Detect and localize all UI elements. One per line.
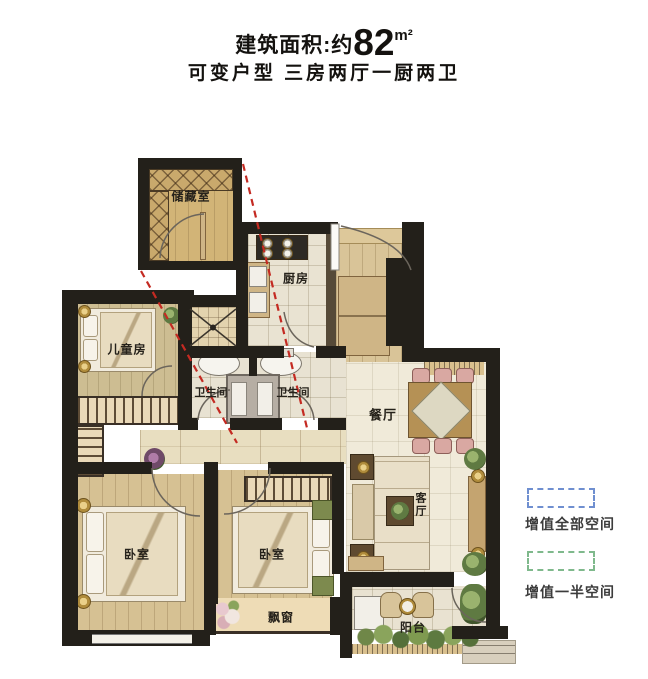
wall <box>230 418 282 430</box>
kids-pillow-2 <box>83 339 98 361</box>
wall <box>330 597 340 635</box>
room-label-bedroom-left: 卧室 <box>124 546 150 563</box>
room-label-bedroom-mid: 卧室 <box>259 546 285 563</box>
wall <box>326 234 336 346</box>
balcony-plant-icon <box>460 584 488 624</box>
legend-half-box <box>527 551 595 571</box>
room-label-storage: 储藏室 <box>171 188 210 205</box>
dining-window-sill <box>424 362 484 375</box>
wall <box>386 258 404 346</box>
wall <box>178 295 192 430</box>
bay-flowers-icon <box>214 600 242 630</box>
wall <box>178 346 284 358</box>
room-label-living: 客厅 <box>412 492 428 518</box>
lamp-icon <box>357 461 370 474</box>
wall <box>76 462 152 474</box>
wall <box>204 597 216 635</box>
shower-tray-left <box>231 382 247 416</box>
wall <box>236 222 338 234</box>
kids-lamp <box>78 305 91 318</box>
dining-chair <box>434 438 452 454</box>
bed-left-pillow <box>86 512 104 552</box>
shower-tray-right <box>257 382 273 416</box>
page-title: 建筑面积:约82m² <box>0 24 648 61</box>
room-label-dining: 餐厅 <box>369 405 397 424</box>
wall <box>452 626 508 639</box>
wall <box>404 348 500 362</box>
living-plant-icon <box>464 448 486 470</box>
living-plant-icon-2 <box>462 552 488 576</box>
title-area-value: 82 <box>353 22 394 63</box>
entry-mat <box>338 228 404 244</box>
wall <box>318 418 346 430</box>
title-area-unit: m² <box>394 27 412 44</box>
wall <box>332 462 344 574</box>
wall <box>316 346 346 358</box>
inset-door-leaf <box>200 212 206 260</box>
legend-full-label: 增值全部空间 <box>525 514 615 534</box>
wall <box>249 350 257 376</box>
room-label-bath-right: 卫生间 <box>277 384 310 400</box>
pouf <box>312 500 334 520</box>
wall <box>486 362 500 628</box>
wall <box>204 462 218 604</box>
room-label-balcony: 阳台 <box>400 619 426 636</box>
foyer-cabinet <box>338 276 390 356</box>
window <box>92 634 192 644</box>
kids-pillow <box>83 315 98 337</box>
burner-icon <box>262 248 273 259</box>
wall <box>340 586 352 658</box>
wall <box>268 462 332 474</box>
nightstand-lamp-2 <box>76 594 91 609</box>
wall <box>178 418 198 430</box>
console-knob <box>471 469 485 483</box>
coffee-table-plant-icon <box>391 502 409 520</box>
variable-space-floor <box>188 307 238 348</box>
room-label-bay-window: 飘窗 <box>268 609 294 626</box>
room-label-bath-left: 卫生间 <box>195 384 228 400</box>
inset-shelf-left <box>149 191 169 261</box>
pouf-2 <box>312 576 334 596</box>
balcony-table <box>399 598 416 615</box>
dining-chair <box>412 438 430 454</box>
tv-console <box>468 476 486 552</box>
kids-lamp-2 <box>78 360 91 373</box>
wall <box>340 572 454 587</box>
page-subtitle: 可变户型 三房两厅一厨两卫 <box>0 58 648 85</box>
wall <box>180 295 244 307</box>
corridor-floor <box>140 430 346 464</box>
kitchen-sink-2 <box>249 292 267 313</box>
wall <box>402 222 424 362</box>
bed-left-pillow-2 <box>86 554 104 594</box>
wall <box>62 290 194 304</box>
kitchen-sink <box>249 266 267 287</box>
nightstand-lamp <box>76 498 91 513</box>
bedroom-mid-wardrobe <box>244 476 332 502</box>
wardrobe-top <box>76 396 180 425</box>
burner-icon <box>282 248 293 259</box>
room-label-kids: 儿童房 <box>107 341 146 358</box>
sideboard <box>348 556 384 571</box>
chaise <box>352 484 374 540</box>
legend-full-box <box>527 488 595 508</box>
wall <box>236 222 248 356</box>
room-label-kitchen: 厨房 <box>283 270 309 287</box>
floorplan-page: 建筑面积:约82m² 可变户型 三房两厅一厨两卫 <box>0 0 648 679</box>
legend-half-label: 增值一半空间 <box>525 582 615 602</box>
title-prefix: 建筑面积:约 <box>235 34 353 57</box>
